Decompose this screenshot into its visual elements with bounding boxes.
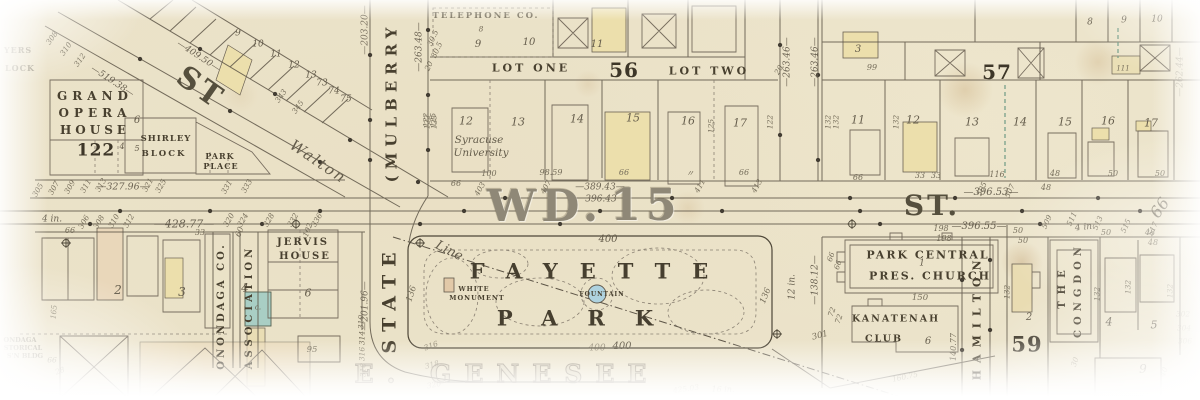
lot-one-label: LOT ONE [492, 63, 570, 74]
genesee-street-name: E. GENESEE [355, 362, 660, 387]
side-num: 122 [766, 115, 774, 129]
diag-meas: 160.75 [891, 371, 918, 384]
frontage-num: 33 [931, 172, 941, 180]
frontage-num: 48 [1148, 239, 1158, 247]
park-meas: 400 [612, 342, 631, 352]
side-num: 125 [429, 113, 437, 127]
lot-num: 10 [523, 38, 536, 48]
hamilton-street-name: E HAMILTON [972, 253, 983, 400]
frontage-num: 〃 [686, 170, 694, 178]
historical-bldg-line1: ONDAGA [4, 337, 37, 344]
walton-addr: 312 [73, 52, 87, 68]
addr: 515 [1120, 218, 1133, 234]
onondaga-co-label: ONONDAGA CO. [217, 242, 227, 369]
side-num: 132 [1124, 280, 1132, 294]
street-meas: 396.43 [585, 196, 617, 205]
fayette-park-line1: FAYETTE [470, 261, 730, 282]
lot-num: 3 [178, 286, 186, 298]
block-number-122: 122 [77, 143, 116, 160]
lot-num: 99 [867, 64, 877, 72]
lot-num: 3 [855, 45, 861, 55]
park-meas: 400 [598, 235, 617, 245]
lot-num: 17 [733, 118, 747, 129]
pipe-size: 12 in. [789, 274, 798, 300]
addr: 333 [240, 178, 254, 194]
frontage-num: 50 [1108, 170, 1118, 178]
lot-num: 8 [479, 25, 484, 33]
historical-bldg-line3: S'N BLDG [7, 353, 43, 360]
lot-num: 9 [1121, 17, 1127, 26]
grand-opera-house-line1: GRAND [57, 90, 133, 102]
lot-num: 2 [114, 284, 122, 296]
frontage-num: 60 [234, 226, 245, 238]
block-number-57: 57 [982, 62, 1012, 82]
lot-num: 17 [1144, 118, 1158, 129]
walton-lot: 13 [305, 72, 316, 81]
street-meas: —396.55— [952, 222, 1007, 232]
lot-num: 10 [1151, 16, 1162, 25]
frontage-num: 48 [1050, 170, 1060, 178]
grand-opera-house-line3: HOUSE [60, 124, 130, 136]
genesee-meas: —400— [579, 345, 614, 354]
walton-st-label: ST [171, 61, 229, 114]
white-monument-line2: MONUMENT [449, 295, 504, 302]
addr: 328 [262, 212, 276, 228]
side-meas: —138.12— [812, 255, 821, 305]
jervis-house-line1: JERVIS [277, 238, 329, 248]
side-num: 132 [1166, 284, 1174, 298]
opera-lot: 4 [119, 143, 124, 151]
frontage-num: 66 [451, 180, 461, 188]
walton-lot: 12 [288, 62, 299, 71]
telephone-co-label: TELEPHONE CO. [433, 12, 540, 21]
side-num: 30 [1070, 356, 1080, 368]
mulberry-street-name: (MULBERRY [385, 22, 400, 183]
addr: 304 [1177, 324, 1191, 332]
addr: 311 [79, 178, 93, 194]
side-meas: 140.77 [950, 333, 958, 361]
side-num: 28 [54, 366, 66, 376]
side-num: 132 [832, 115, 840, 129]
addr: 332 [286, 212, 300, 228]
lot-num: 6 [305, 288, 312, 299]
lot-num: 12 [459, 116, 473, 127]
side-num: 72 [834, 313, 844, 325]
lot-num: 6 [925, 337, 931, 347]
edge-num-66: 66 [1148, 195, 1173, 221]
side-num: 66 [47, 356, 57, 364]
lot-num: 9 [1139, 363, 1147, 375]
addr: 321 [141, 177, 155, 193]
addr: 413 [750, 178, 764, 194]
side-num: 66 [833, 259, 843, 271]
side-num: 40 [1159, 366, 1169, 378]
addr: 310 [357, 315, 365, 329]
lot-num: 4 [1106, 317, 1113, 328]
genesee-meas: 425.03 [672, 383, 699, 394]
frontage-num: 198 [936, 235, 951, 243]
walton-addr: 310 [59, 41, 73, 57]
lot-num: 13 [511, 117, 525, 128]
mulberry-num: 20 [424, 60, 435, 72]
addr: 325 [154, 178, 168, 194]
frontage-num: 198 [933, 225, 948, 233]
walton-lot: 10 [252, 41, 263, 50]
pipe-size: 4 in. [42, 216, 62, 225]
lot-num: 1 [919, 260, 925, 269]
lot-num: 14 [1013, 117, 1027, 128]
park-meas: 136 [405, 285, 418, 303]
color-key-c: c. [255, 305, 261, 312]
side-num: 125 [707, 119, 715, 133]
frontage-num: 100 [481, 170, 496, 178]
edge-meas: —262.44— [1177, 47, 1186, 97]
frontage-num: 50 [1013, 227, 1023, 235]
lot-num: 13 [965, 117, 979, 128]
street-meas: —389.43— [575, 184, 625, 193]
addr: 306 [1178, 337, 1192, 345]
jervis-house-line2: HOUSE [279, 252, 331, 262]
park-place-line1: PARK [205, 152, 234, 160]
frontage-num: 66 [65, 227, 75, 235]
walton-lot: 11 [270, 51, 281, 60]
walton-addr: 308 [45, 30, 59, 46]
lot-num: 12 [906, 115, 920, 126]
mulberry-meas: —203.20— [362, 5, 371, 55]
walton-lot: 9 [235, 30, 241, 39]
lot-num: 2 [1026, 313, 1032, 323]
syracuse-university-line1: Syracuse [455, 135, 504, 146]
side-num: 132 [1093, 287, 1101, 301]
side-num: 301 [811, 330, 829, 342]
myers-block-line2: LOCK [5, 64, 35, 72]
ward-line-label: Line [433, 239, 465, 264]
frontage-num: 150 [912, 294, 928, 303]
lot-num: 15 [626, 113, 640, 124]
historical-bldg-line2: STORICAL [4, 345, 42, 352]
side-num: 132 [892, 115, 900, 129]
opera-lot: 6 [134, 116, 140, 126]
lot-num: 16 [1101, 116, 1115, 127]
addr: 302 [1176, 310, 1190, 318]
side-num: 165 [50, 305, 59, 320]
lot-num: 9 [475, 40, 481, 50]
side-num: 132 [1003, 285, 1011, 299]
addr: 316 [423, 340, 439, 352]
park-meas: 136 [759, 287, 773, 305]
frontage-num: 98.59 [540, 169, 563, 177]
addr: 309 [63, 179, 77, 195]
myers-block-line1: YERS [4, 46, 32, 54]
shirley-block-line1: SHIRLEY [141, 135, 192, 144]
frontage-num: 116 [989, 171, 1004, 179]
addr: 310 [107, 213, 121, 229]
walton-lot: 75 [340, 96, 351, 105]
addr: 403 [473, 181, 487, 197]
addr: 305 [31, 182, 45, 198]
congdon-line2: CONGDON [1074, 242, 1084, 338]
kanatenah-club-line1: KANATENAH [852, 314, 940, 324]
shirley-block-line2: BLOCK [142, 150, 187, 159]
lot-num: 11 [591, 40, 604, 50]
addr: 320 [222, 212, 236, 228]
sanborn-map-scan: YERSLOCK308310312—519.38——409.50—STWalto… [0, 0, 1200, 400]
frontage-num: 50 [1101, 229, 1111, 237]
walton-addr: 345 [291, 99, 305, 115]
congdon-line1: THE [1058, 263, 1068, 309]
addr: 411 [693, 178, 707, 194]
cross-street-meas: —263.46— [812, 37, 821, 87]
addr: 509 [1041, 214, 1054, 230]
fountain-label: FOUNTAIN [579, 292, 624, 298]
addr: 331 [220, 179, 234, 195]
frontage-num: 50 [1155, 170, 1165, 178]
addr: 308 [92, 214, 106, 230]
walton-addr: 343 [274, 88, 288, 104]
opera-lot: 5 [134, 145, 139, 153]
lot-num: 111 [1116, 66, 1129, 73]
block-number-56: 56 [609, 60, 639, 80]
frontage-num: 33 [195, 229, 205, 237]
frontage-num: 66 [739, 169, 749, 177]
walton-lot: 74 [328, 88, 339, 97]
pipe-size: 16 in. [712, 386, 735, 394]
syracuse-university-line2: University [453, 148, 508, 159]
walton-name: Walton [287, 138, 349, 187]
frontage-num: 48 [1145, 229, 1155, 237]
frontage-num: 50 [1018, 237, 1028, 245]
kanatenah-club-line2: CLUB [865, 334, 903, 344]
fayette-park-line2: PARK [497, 308, 683, 329]
frontage-num: 48 [1041, 184, 1051, 192]
main-st-label: ST. [904, 192, 960, 220]
frontage-num: 33 [915, 172, 925, 180]
cross-street-meas: —263.46— [784, 37, 793, 87]
addr: 306 [77, 214, 91, 230]
white-monument-line1: WHITE [458, 286, 489, 293]
lot-num: 16 [681, 116, 695, 127]
lot-num: 5 [1151, 320, 1158, 331]
lot-num: 8 [1087, 19, 1093, 28]
association-label: ASSOCIATION [245, 245, 255, 370]
addr: 314 [358, 331, 366, 345]
lot-num: 95 [307, 346, 318, 355]
frontage-num: 102 [302, 222, 314, 238]
lot-two-label: LOT TWO [669, 66, 749, 77]
addr: 312 [122, 213, 136, 229]
lot-num: 14 [570, 114, 584, 125]
state-street-name: STATE [381, 244, 400, 353]
lot-num: 11 [851, 115, 865, 126]
lot-num: 15 [1058, 117, 1072, 128]
park-place-line2: PLACE [203, 162, 238, 170]
frontage-num: 66 [853, 174, 863, 182]
addr: 307 [47, 180, 61, 196]
grand-opera-house-line2: OPERA [59, 107, 132, 119]
labels-layer: YERSLOCK308310312—519.38——409.50—STWalto… [0, 0, 1200, 400]
frontage-num: 66 [619, 169, 629, 177]
walton-lot: 73 [316, 80, 327, 89]
street-meas: —428.77— [154, 219, 215, 230]
block-number-59: 59 [1011, 334, 1042, 355]
